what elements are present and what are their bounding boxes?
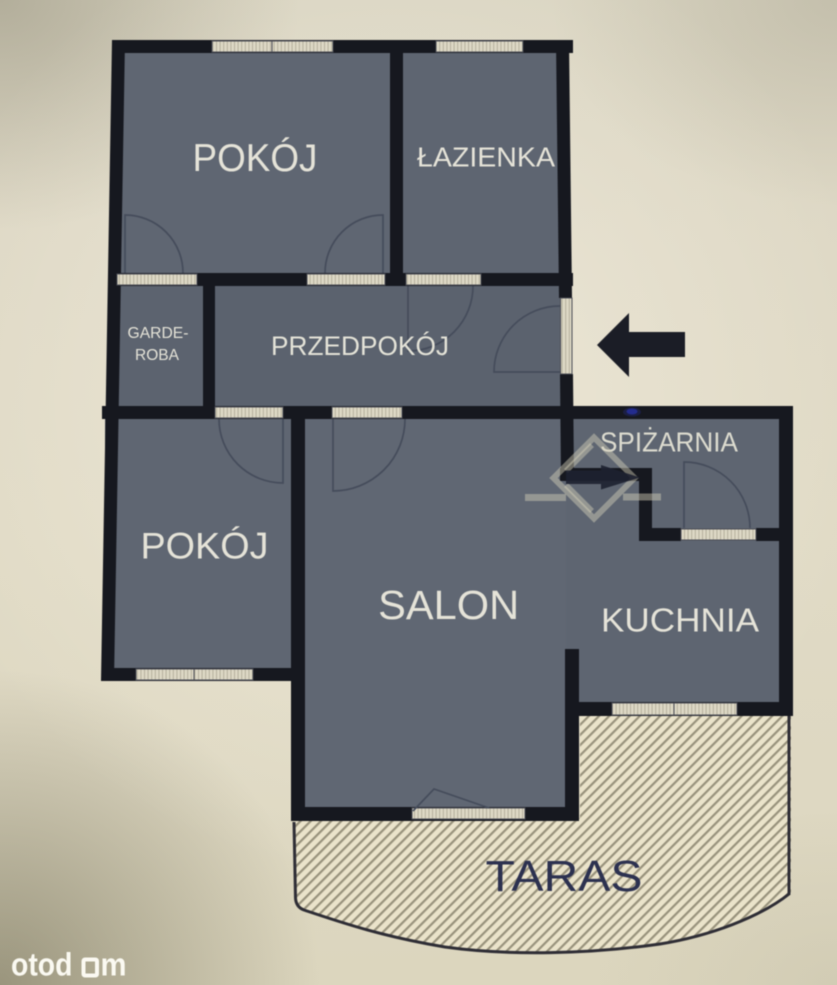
svg-text:ŁAZIENKA: ŁAZIENKA (417, 142, 555, 173)
svg-text:POKÓJ: POKÓJ (193, 137, 318, 180)
svg-text:SPIŻARNIA: SPIŻARNIA (600, 427, 738, 458)
svg-text:SALON: SALON (378, 582, 519, 628)
svg-text:KUCHNIA: KUCHNIA (601, 602, 759, 639)
svg-text:otod: otod (11, 947, 73, 983)
svg-text:TARAS: TARAS (486, 852, 643, 901)
svg-text:m: m (101, 947, 127, 983)
svg-text:POKÓJ: POKÓJ (141, 526, 269, 567)
svg-text:GARDE-: GARDE- (128, 325, 189, 342)
svg-text:PRZEDPOKÓJ: PRZEDPOKÓJ (271, 331, 449, 361)
svg-text:ROBA: ROBA (135, 347, 180, 364)
